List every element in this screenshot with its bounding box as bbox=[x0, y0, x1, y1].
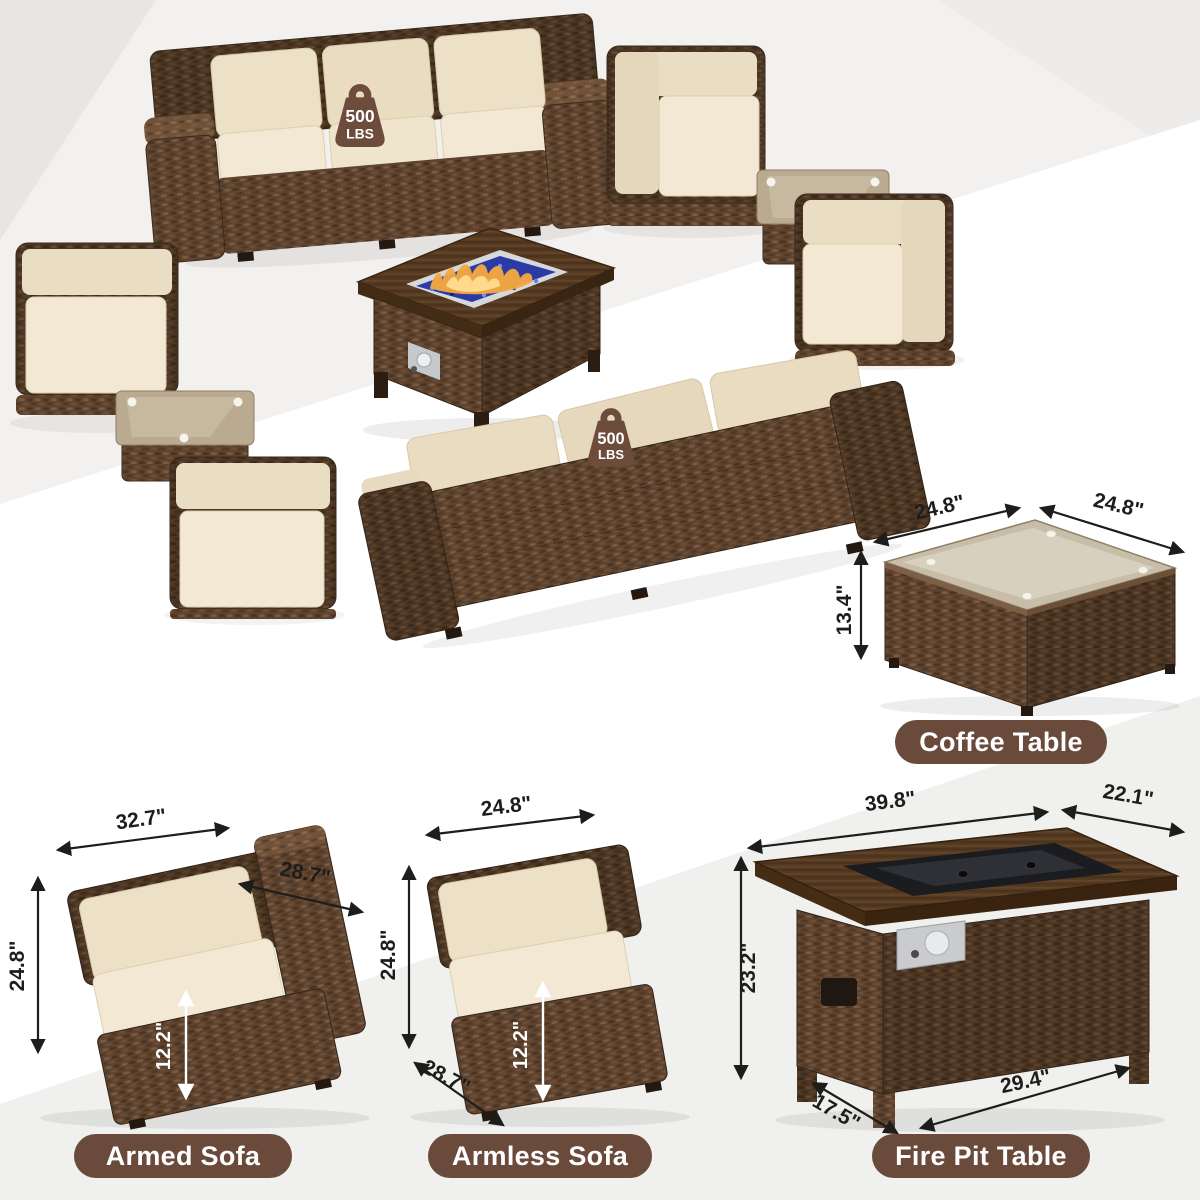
scene-sofa-three-seat-back bbox=[362, 392, 922, 692]
weight-capacity-badge: 500 LBS bbox=[585, 408, 637, 468]
coffee-table-label: Coffee Table bbox=[895, 720, 1107, 764]
fire-pit-table-illustration: 39.8" 22.1" 23.2" 17.5" 29.4" bbox=[725, 788, 1200, 1138]
coffee-table-panel: 24.8" 24.8" 13.4" bbox=[845, 482, 1200, 722]
armless-chair-set-illustration bbox=[2, 235, 350, 620]
armless-sofa-label: Armless Sofa bbox=[428, 1134, 652, 1178]
coffee-table-top-width-dim: 24.8" bbox=[912, 491, 967, 525]
coffee-table-top-depth-dim: 24.8" bbox=[1091, 489, 1146, 523]
armed-sofa-seat-height-dim: 12.2" bbox=[153, 1022, 175, 1070]
coffee-table-height-dim: 13.4" bbox=[833, 585, 856, 636]
armed-sofa-height-dim: 24.8" bbox=[6, 941, 29, 992]
badge-weight-unit: LBS bbox=[346, 126, 374, 142]
armless-sofa-panel: 24.8" 24.8" 12.2" 28.7" bbox=[385, 795, 715, 1135]
armed-sofa-label: Armed Sofa bbox=[74, 1134, 292, 1178]
armless-sofa-illustration: 24.8" 24.8" 12.2" 28.7" bbox=[385, 795, 715, 1135]
burner-hole bbox=[1026, 862, 1036, 869]
burner-hole bbox=[958, 871, 968, 878]
armed-sofa-width-dim: 32.7" bbox=[114, 805, 168, 835]
weight-icon: 500 LBS bbox=[332, 84, 388, 148]
armless-sofa-height-dim: 24.8" bbox=[377, 930, 400, 981]
product-infographic: 500 LBS bbox=[0, 0, 1200, 1200]
armed-sofa-panel: 32.7" 28.7" 24.8" 12.2" bbox=[10, 800, 400, 1130]
weight-capacity-badge: 500 LBS bbox=[332, 84, 388, 148]
gas-control-knob bbox=[925, 931, 949, 955]
badge-weight-unit: LBS bbox=[598, 447, 624, 462]
badge-weight-value: 500 bbox=[597, 430, 624, 448]
scene-armless-chair-set bbox=[2, 235, 350, 620]
coffee-table-illustration: 24.8" 24.8" 13.4" bbox=[845, 482, 1200, 722]
corner-chair-set-illustration bbox=[595, 32, 965, 367]
fire-pit-height-dim: 23.2" bbox=[737, 943, 760, 994]
side-handle-cutout bbox=[821, 978, 857, 1006]
armed-sofa-illustration: 32.7" 28.7" 24.8" 12.2" bbox=[10, 800, 400, 1130]
gas-control-knob bbox=[417, 353, 431, 367]
fire-pit-top-width-dim: 39.8" bbox=[864, 787, 917, 816]
scene-corner-chair-set bbox=[595, 32, 965, 367]
armless-sofa-seat-height-dim: 12.2" bbox=[510, 1021, 532, 1069]
fire-pit-table-panel: 39.8" 22.1" 23.2" 17.5" 29.4" bbox=[725, 788, 1200, 1138]
badge-weight-value: 500 bbox=[345, 106, 375, 126]
weight-icon: 500 LBS bbox=[585, 408, 637, 468]
fire-pit-table-label: Fire Pit Table bbox=[872, 1134, 1090, 1178]
armless-sofa-width-dim: 24.8" bbox=[480, 792, 533, 821]
